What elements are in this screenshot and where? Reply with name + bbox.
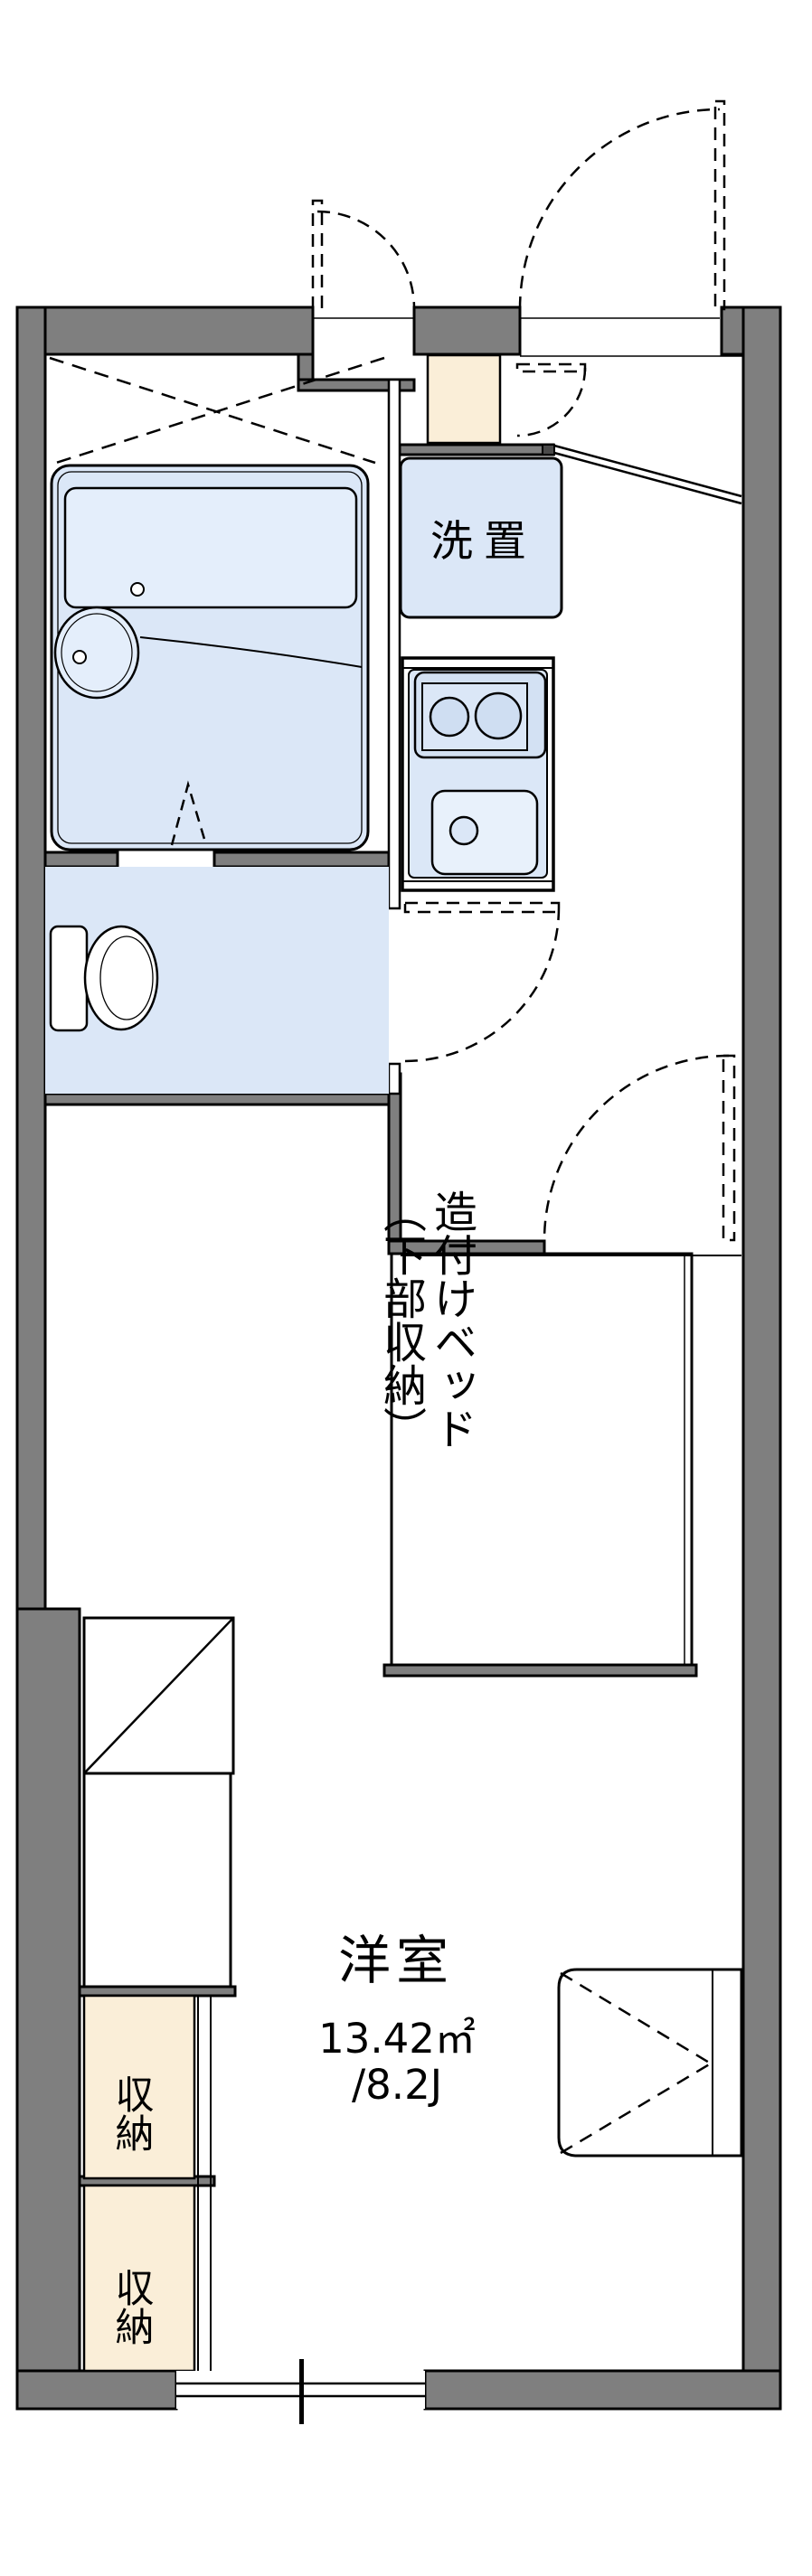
room-area-m2-label: 13.42㎡ bbox=[298, 2006, 496, 2064]
washer-space-label: 洗置 bbox=[425, 506, 543, 569]
wash-basin bbox=[55, 607, 138, 698]
toilet bbox=[51, 926, 157, 1030]
trunk-door-leaf bbox=[313, 201, 322, 308]
bathtub bbox=[52, 465, 368, 850]
toilet-partition-lower bbox=[389, 1064, 400, 1094]
left-wall-thick-section bbox=[17, 1609, 80, 2409]
toilet-door-leaf bbox=[405, 903, 559, 912]
room-door-leaf bbox=[723, 1056, 734, 1240]
entrance-door-swing bbox=[520, 109, 720, 309]
wash-basin-drain bbox=[73, 651, 86, 663]
toilet-partition-upper bbox=[389, 380, 400, 908]
toilet-partition bbox=[389, 380, 400, 1094]
top-wall-mid-segment bbox=[414, 307, 520, 354]
kitchen-unit bbox=[402, 658, 553, 890]
genkan-door-leaf bbox=[517, 364, 585, 371]
toilet-door-swing bbox=[405, 907, 559, 1061]
stove-burner-right bbox=[476, 693, 521, 738]
built-in-bed-label-line2: （下部収納） bbox=[375, 1189, 426, 1768]
entrance-door-leaf bbox=[715, 101, 724, 309]
bath-toilet-wall-left bbox=[45, 852, 118, 867]
bath-toilet-wall-right bbox=[214, 852, 389, 867]
balcony-sliding-window bbox=[176, 2359, 425, 2424]
bathroom-upper-marking bbox=[50, 358, 384, 463]
built-in-bed-label: 造付けベッド（下部収納） bbox=[375, 1189, 477, 1768]
left-side-units bbox=[84, 1618, 233, 1987]
bathtub-drain bbox=[131, 583, 144, 596]
genkan-bottom-wall bbox=[400, 445, 553, 455]
top-wall-left-segment bbox=[17, 307, 313, 354]
toilet-bowl bbox=[85, 926, 157, 1029]
side-window-box bbox=[559, 1970, 741, 2156]
wall-end-cap bbox=[543, 445, 554, 455]
bathtub-basin bbox=[65, 488, 356, 607]
window-mullion bbox=[299, 2359, 304, 2424]
appliance-space bbox=[84, 1773, 231, 1987]
storage-upper-label: 収納 bbox=[112, 2032, 159, 2195]
kitchen-sink bbox=[432, 791, 537, 874]
room-door-swing bbox=[544, 1056, 729, 1240]
stove-burner-left bbox=[430, 698, 468, 736]
western-room-label: 洋室 bbox=[314, 1918, 478, 1994]
genkan-step-edge bbox=[554, 446, 741, 496]
trunk-door-swing bbox=[317, 212, 414, 308]
genkan-door-swing bbox=[517, 368, 585, 436]
bottom-wall-right-segment bbox=[425, 2371, 780, 2409]
genkan-floor bbox=[428, 355, 500, 443]
floor-plan: 洗置 造付けベッド（下部収納） 洋室 13.42㎡ /8.2J 収納 収納 bbox=[0, 0, 812, 2576]
sink-faucet bbox=[450, 817, 477, 844]
toilet-bottom-wall bbox=[45, 1094, 389, 1105]
toilet-tank bbox=[51, 926, 87, 1030]
built-in-bed-label-line1: 造付けベッド bbox=[426, 1189, 477, 1768]
storage-lower-label: 収納 bbox=[112, 2225, 159, 2388]
room-area-jo-label: /8.2J bbox=[298, 2061, 496, 2109]
right-wall bbox=[743, 307, 780, 2409]
